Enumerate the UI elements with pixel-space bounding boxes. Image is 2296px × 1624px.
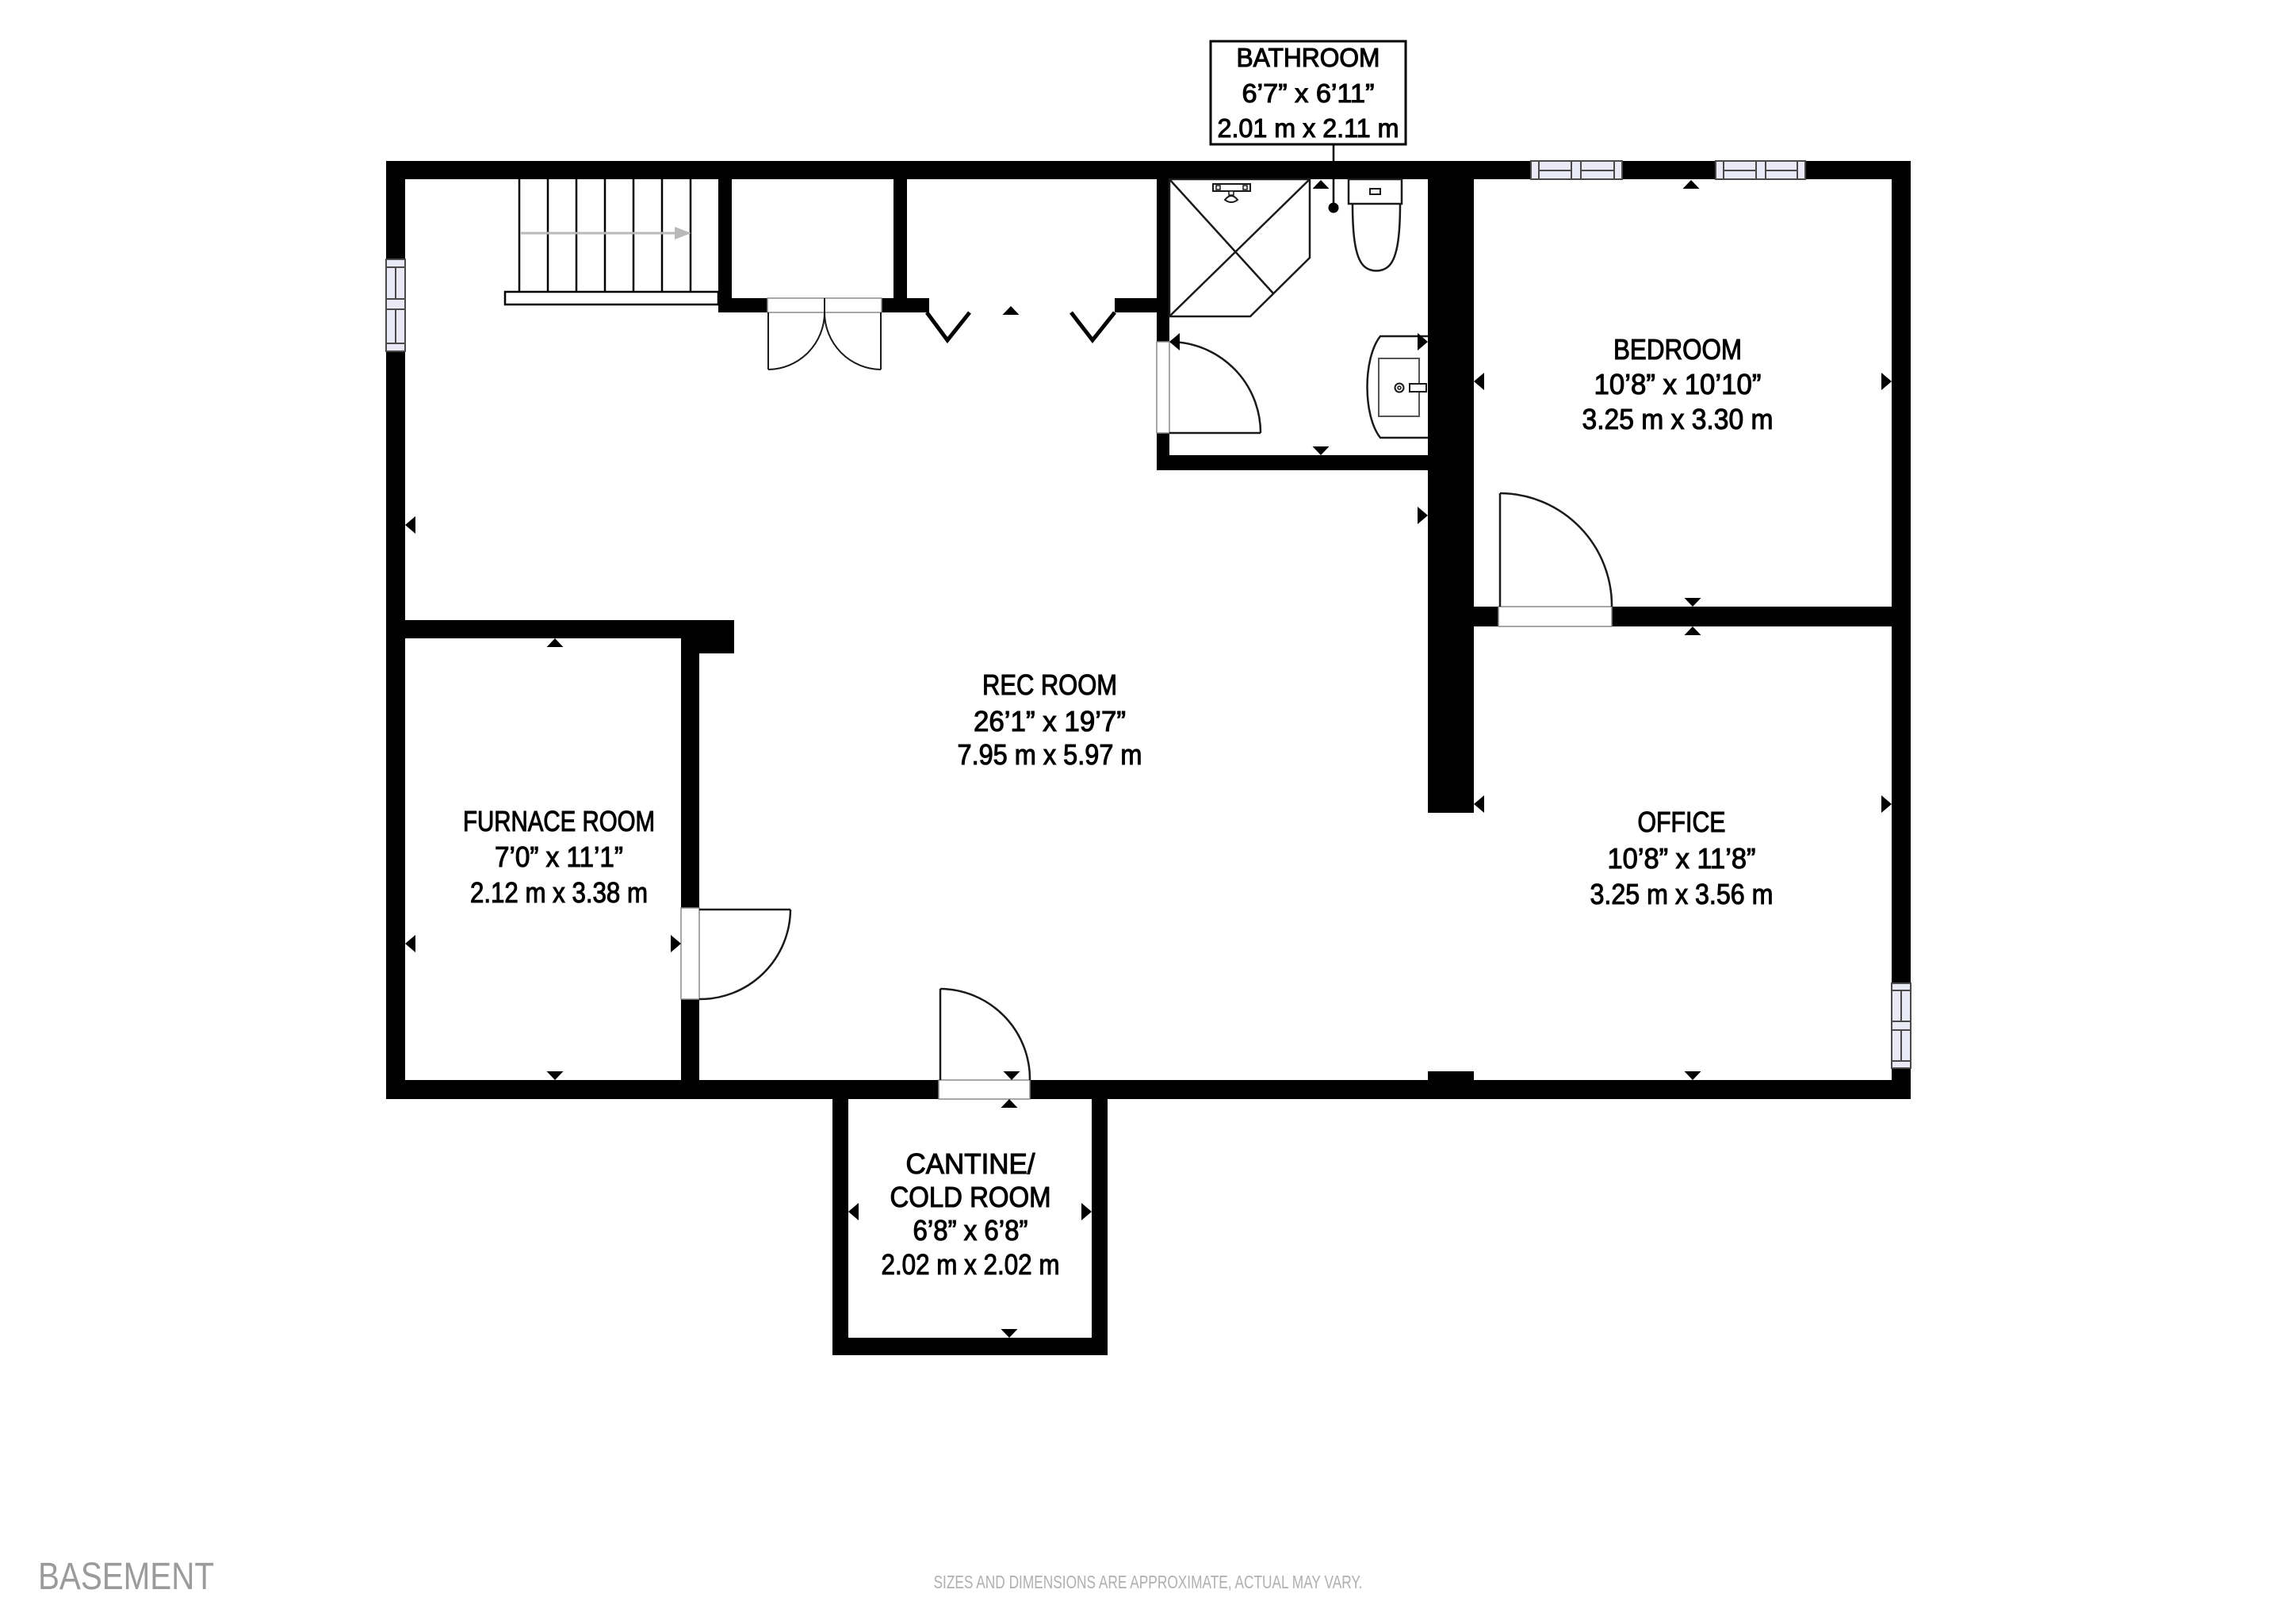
svg-text:2.01 m x 2.11 m: 2.01 m x 2.11 m — [1218, 113, 1399, 143]
svg-text:2.12 m x 3.38 m: 2.12 m x 3.38 m — [470, 876, 648, 909]
svg-text:COLD ROOM: COLD ROOM — [890, 1181, 1051, 1213]
svg-text:3.25 m x 3.56 m: 3.25 m x 3.56 m — [1590, 878, 1774, 910]
svg-text:CANTINE/: CANTINE/ — [906, 1147, 1035, 1180]
svg-text:3.25 m x 3.30 m: 3.25 m x 3.30 m — [1582, 403, 1774, 435]
svg-text:FURNACE ROOM: FURNACE ROOM — [463, 805, 655, 837]
svg-text:REC ROOM: REC ROOM — [982, 668, 1117, 701]
svg-text:26’1” x 19’7”: 26’1” x 19’7” — [974, 705, 1126, 737]
svg-text:6’8” x 6’8”: 6’8” x 6’8” — [913, 1214, 1028, 1247]
svg-text:BASEMENT: BASEMENT — [38, 1556, 214, 1598]
svg-text:OFFICE: OFFICE — [1638, 806, 1726, 838]
svg-text:10’8” x 11’8”: 10’8” x 11’8” — [1608, 842, 1756, 875]
svg-text:2.02 m x 2.02 m: 2.02 m x 2.02 m — [882, 1248, 1060, 1281]
svg-text:BEDROOM: BEDROOM — [1613, 333, 1742, 366]
svg-text:7’0” x 11’1”: 7’0” x 11’1” — [495, 841, 623, 873]
svg-text:7.95 m x 5.97 m: 7.95 m x 5.97 m — [958, 738, 1142, 771]
svg-text:SIZES AND DIMENSIONS ARE APPRO: SIZES AND DIMENSIONS ARE APPROXIMATE, AC… — [934, 1572, 1363, 1592]
svg-text:6’7” x 6’11”: 6’7” x 6’11” — [1242, 79, 1375, 108]
svg-text:BATHROOM: BATHROOM — [1237, 43, 1380, 72]
svg-text:10’8” x 10’10”: 10’8” x 10’10” — [1594, 368, 1762, 400]
